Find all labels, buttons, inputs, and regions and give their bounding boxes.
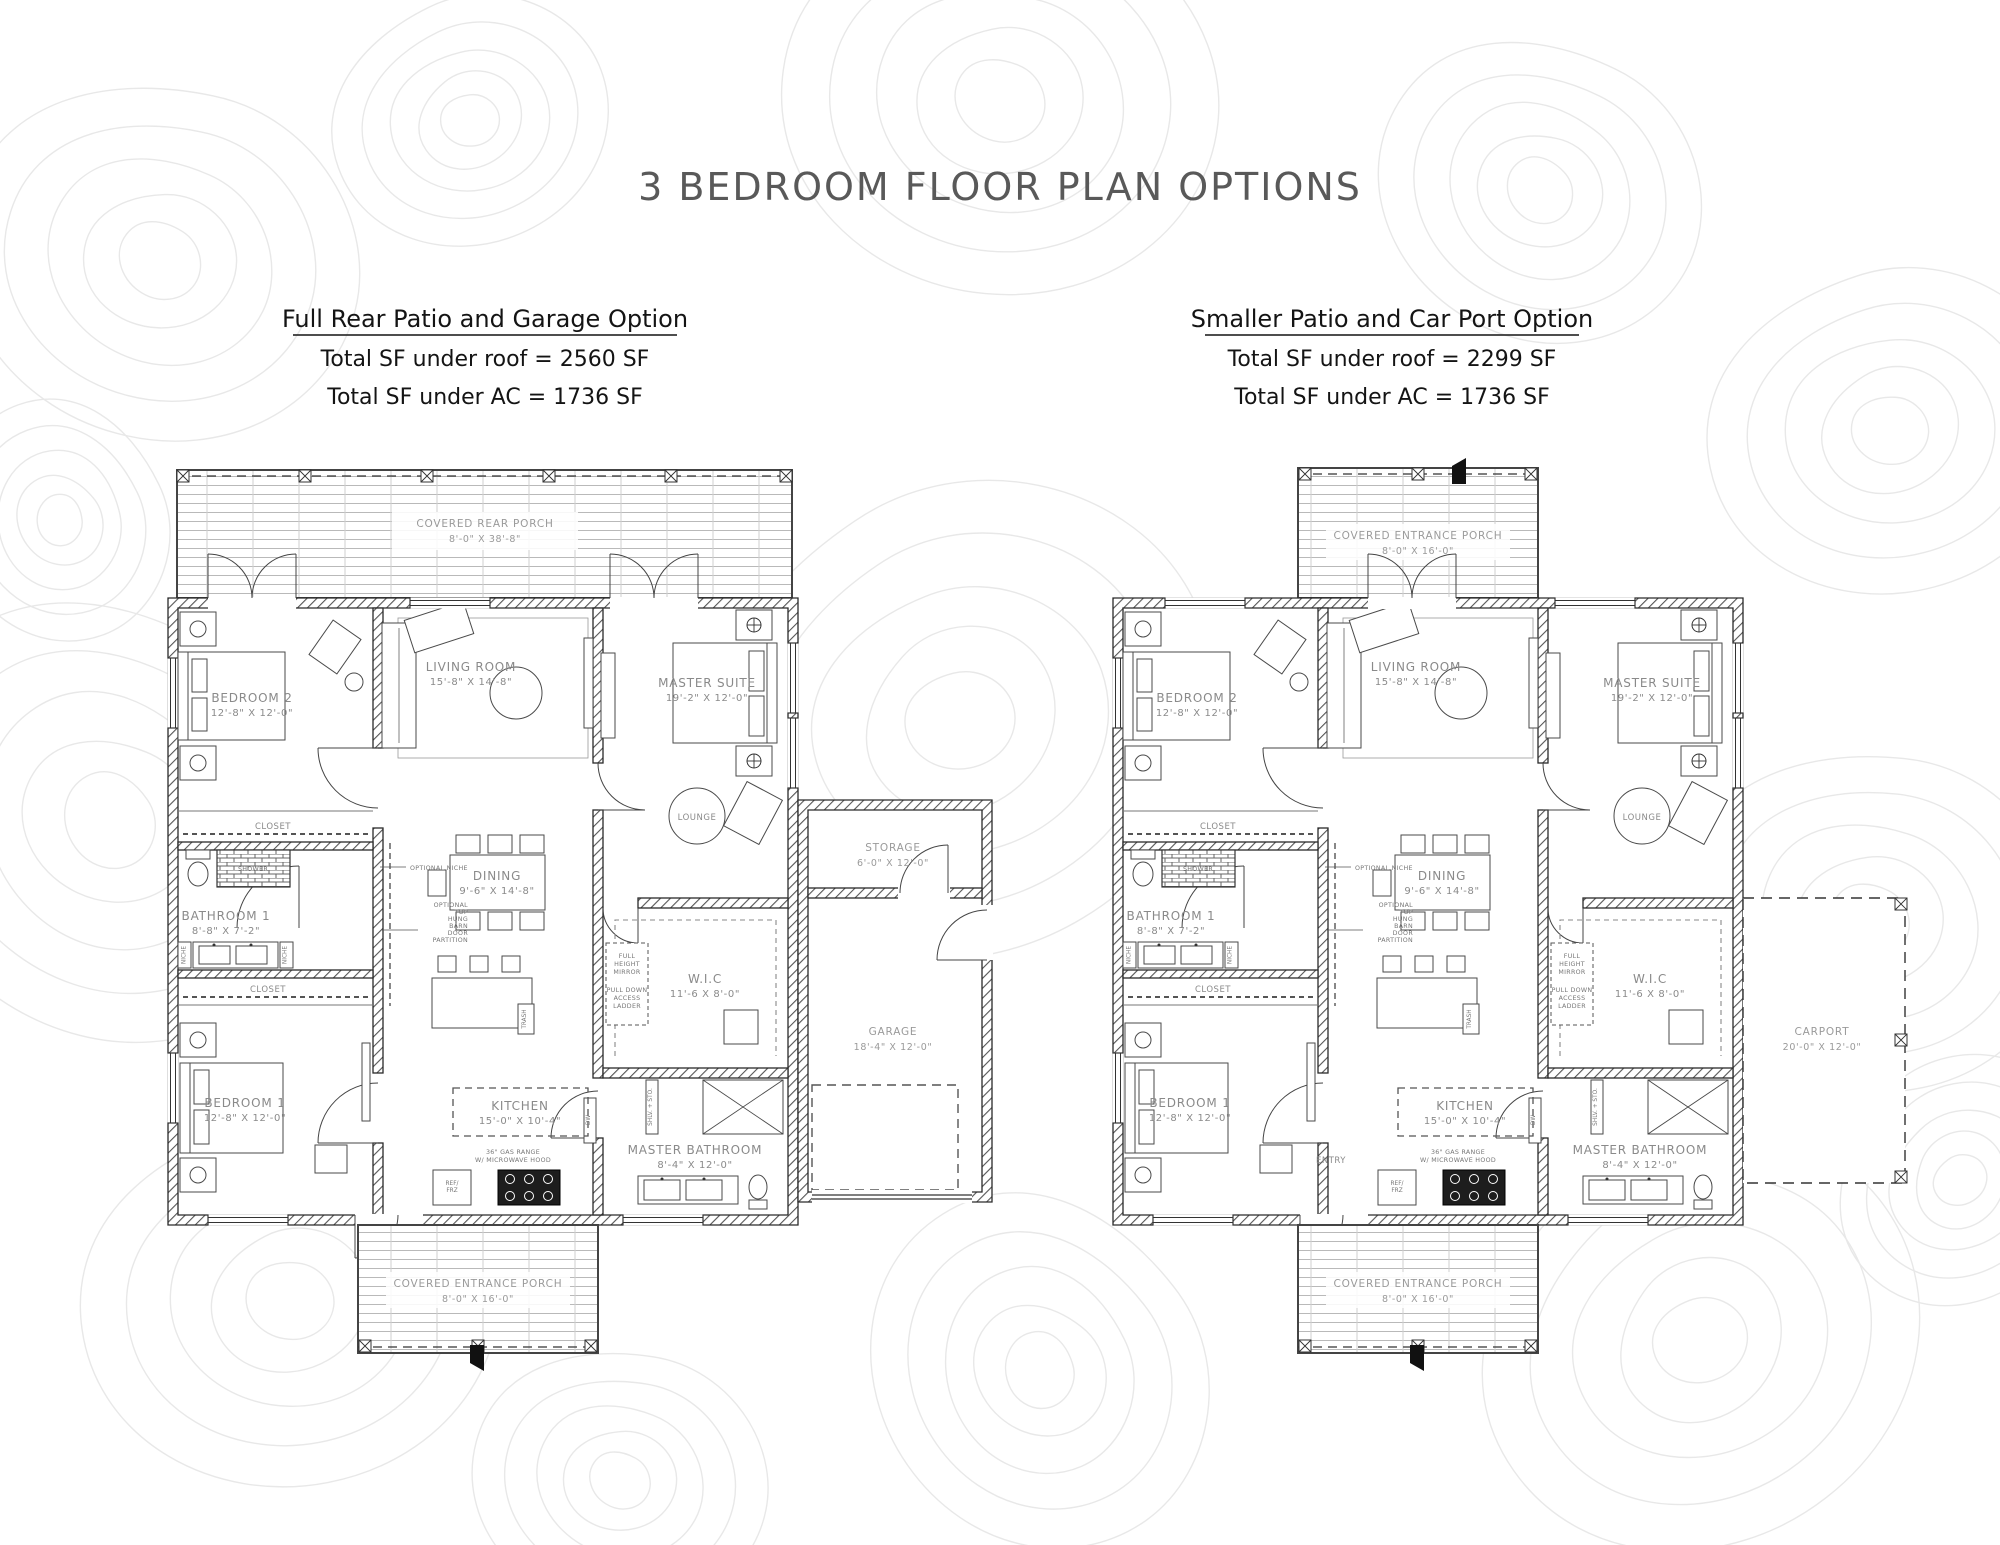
option-ac-right: Total SF under AC = 1736 SF [1233, 385, 1549, 410]
covered-rear-porch: COVERED REAR PORCH 8'-0" X 38'-8" [177, 470, 792, 598]
garage-label: GARAGE [869, 1026, 918, 1038]
floor-plan-left: COVERED REAR PORCH 8'-0" X 38'-8" [168, 470, 994, 1371]
option-title-left: Full Rear Patio and Garage Option [282, 305, 688, 333]
carport-label: CARPORT [1795, 1026, 1850, 1038]
porch-dims: 8'-0" X 38'-8" [449, 534, 521, 545]
porch-dims: 8'-0" X 16'-0" [1382, 1294, 1454, 1305]
porch-label: COVERED ENTRANCE PORCH [1334, 1278, 1503, 1290]
floor-plan-right: COVERED ENTRANCE PORCH 8'-0" X 16'-0" CA… [1113, 458, 1908, 1371]
option-ac-left: Total SF under AC = 1736 SF [326, 385, 642, 410]
porch-label: COVERED ENTRANCE PORCH [394, 1278, 563, 1290]
covered-entrance-porch-bottom: COVERED ENTRANCE PORCH 8'-0" X 16'-0" [1298, 1225, 1538, 1371]
storage-dims: 6'-0" X 12'-0" [857, 858, 929, 869]
step-marker-icon [470, 1345, 484, 1371]
garage-dims: 18'-4" X 12'-0" [854, 1042, 933, 1053]
page-title: 3 BEDROOM FLOOR PLAN OPTIONS [638, 165, 1362, 209]
porch-label: COVERED REAR PORCH [416, 518, 553, 530]
right-option-heading: Smaller Patio and Car Port Option Total … [1191, 305, 1593, 410]
carport: CARPORT 20'-0" X 12'-0" [1743, 898, 1907, 1183]
step-marker-icon [1452, 458, 1466, 484]
option-roof-right: Total SF under roof = 2299 SF [1227, 347, 1557, 372]
covered-entrance-porch-top: COVERED ENTRANCE PORCH 8'-0" X 16'-0" [1298, 458, 1538, 598]
entry-label: ENTRY [1316, 1156, 1346, 1166]
porch-label: COVERED ENTRANCE PORCH [1334, 530, 1503, 542]
garage-wing: STORAGE 6'-0" X 12'-0" GARAGE 18'-4" X 1… [798, 800, 993, 1203]
option-roof-left: Total SF under roof = 2560 SF [320, 347, 650, 372]
step-marker-icon [1410, 1345, 1424, 1371]
storage-label: STORAGE [865, 842, 921, 854]
covered-entrance-porch: COVERED ENTRANCE PORCH 8'-0" X 16'-0" [358, 1225, 598, 1371]
option-title-right: Smaller Patio and Car Port Option [1191, 305, 1593, 333]
floor-plan-sheet: BEDROOM 2 12'-8" X 12'-0" LIVING ROOM 15… [0, 0, 2000, 1545]
carport-dims: 20'-0" X 12'-0" [1783, 1042, 1862, 1053]
porch-dims: 8'-0" X 16'-0" [442, 1294, 514, 1305]
garage-door [812, 1190, 972, 1203]
left-option-heading: Full Rear Patio and Garage Option Total … [282, 305, 688, 410]
